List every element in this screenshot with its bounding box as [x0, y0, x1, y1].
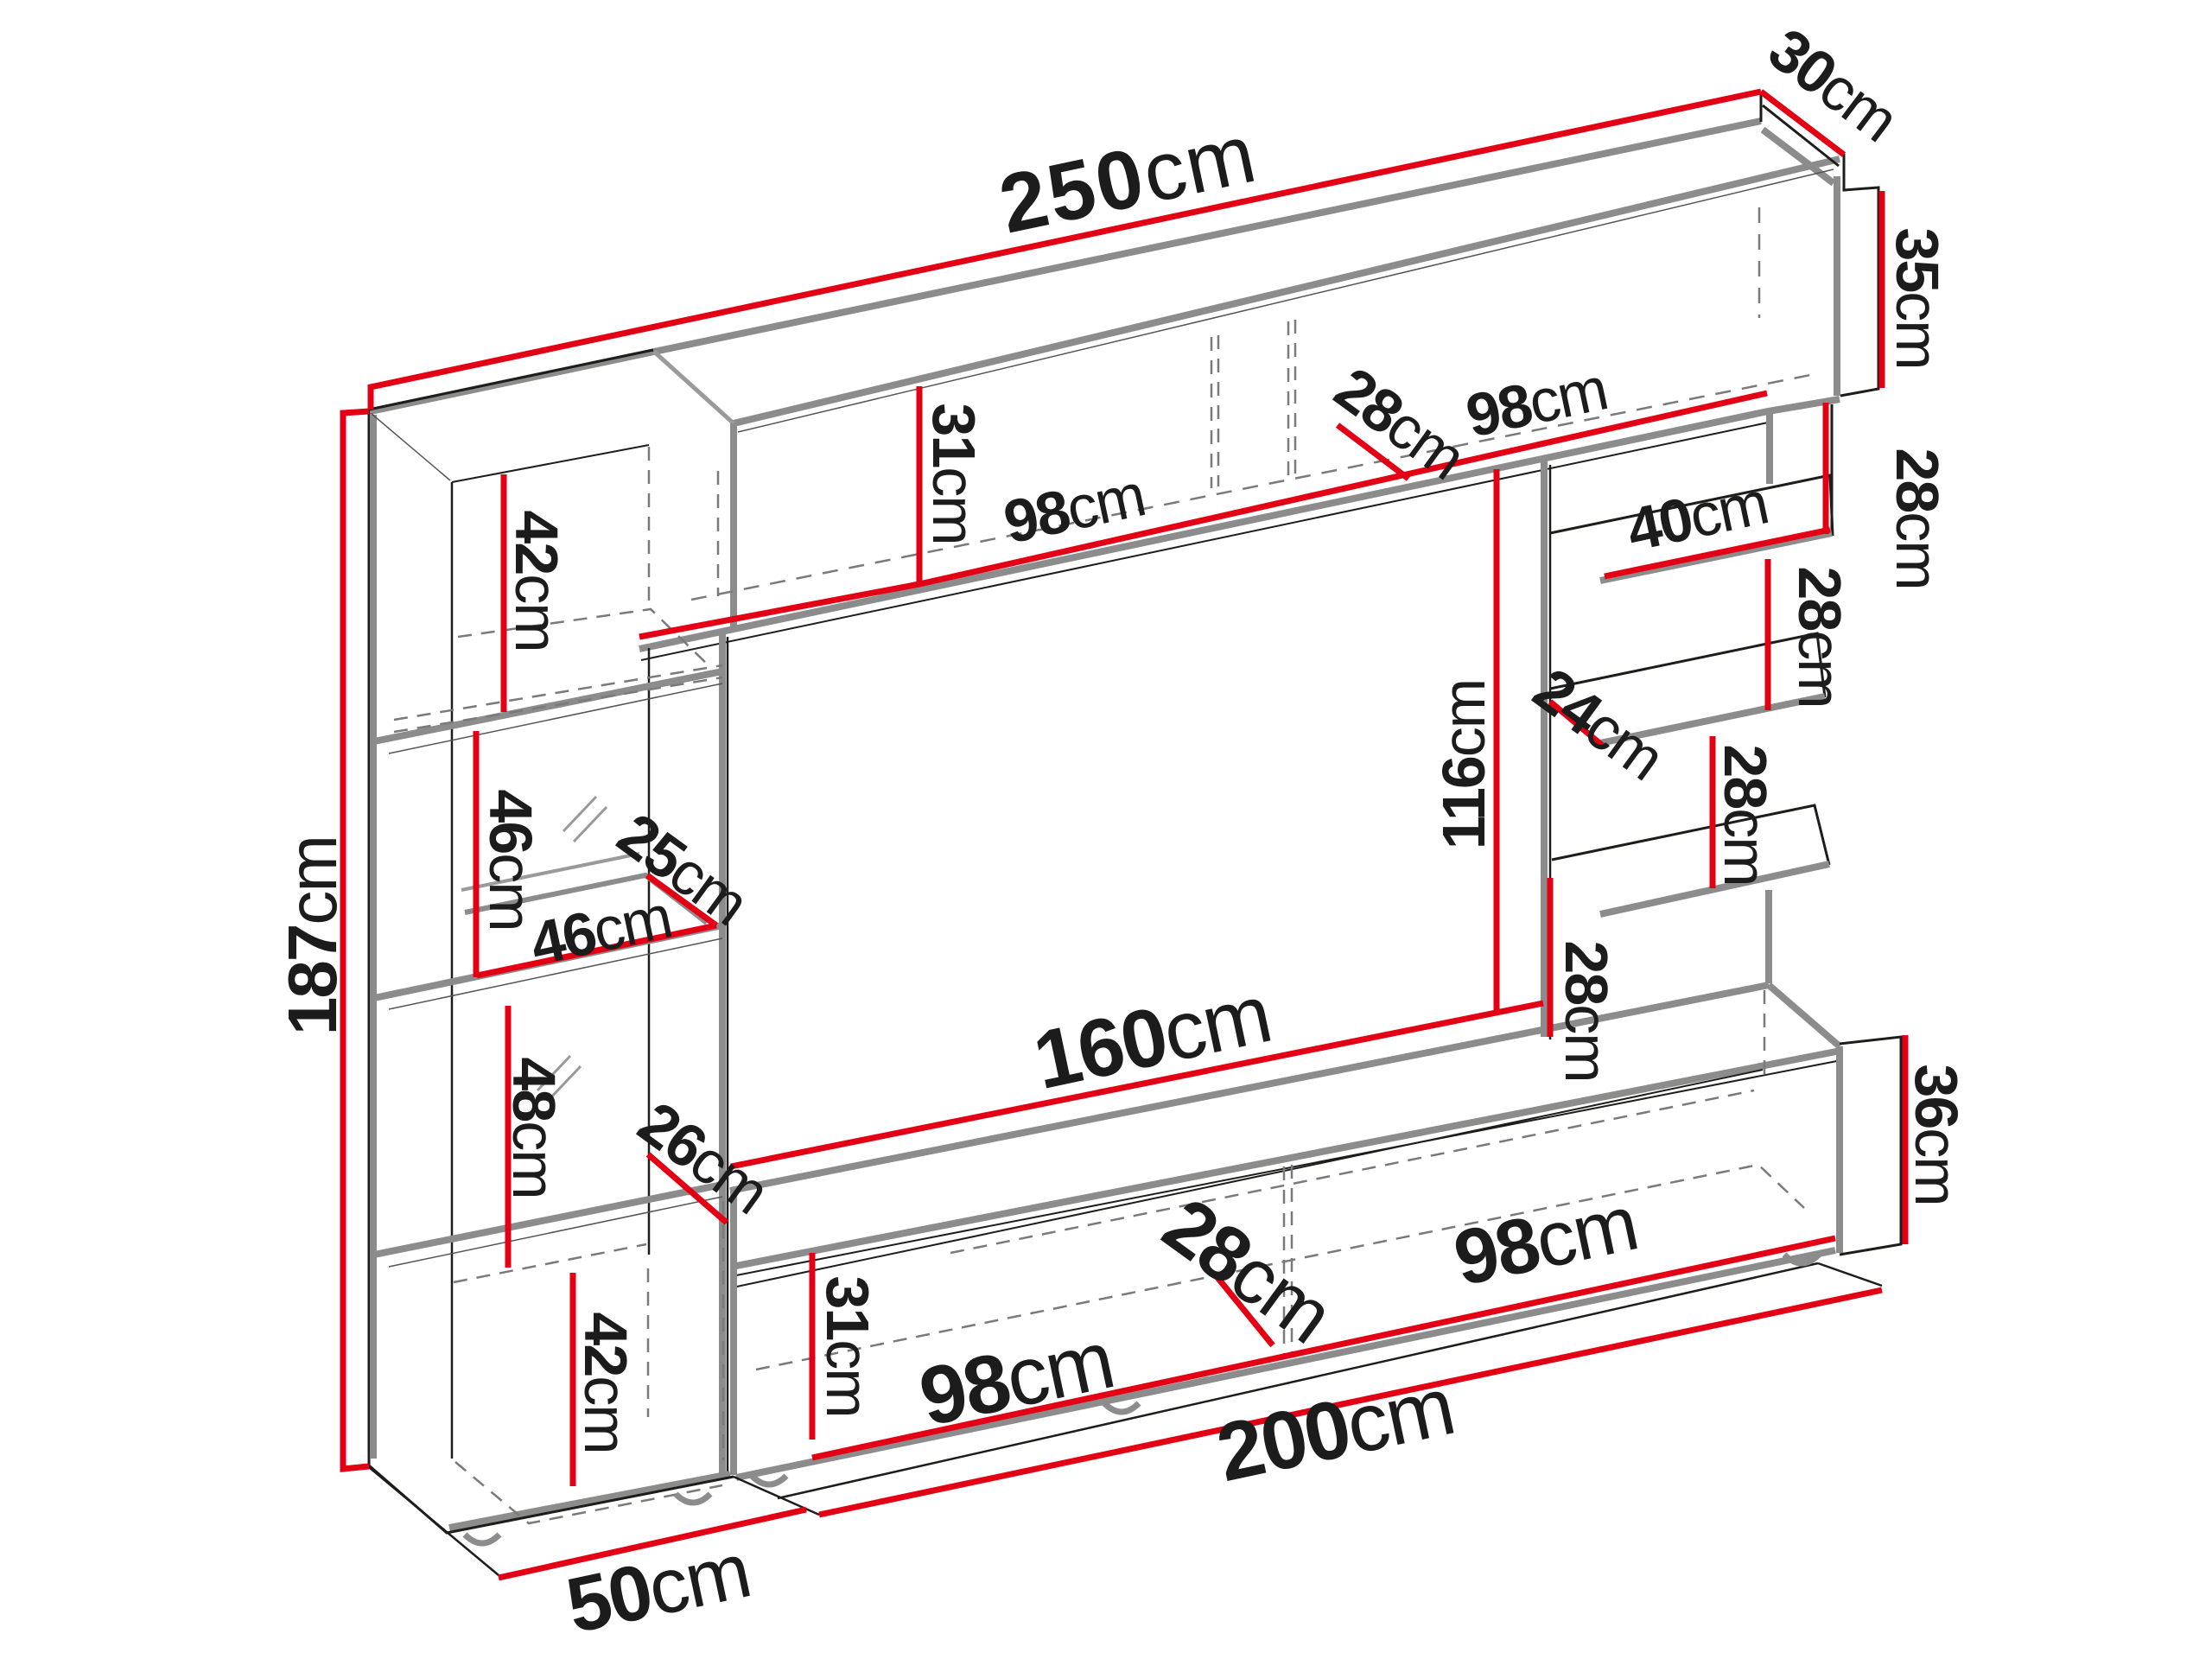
svg-text:116cm: 116cm — [1430, 680, 1497, 849]
svg-text:42cm: 42cm — [572, 1312, 639, 1452]
svg-text:28cm: 28cm — [1147, 1182, 1346, 1360]
svg-text:160cm: 160cm — [1027, 968, 1278, 1107]
svg-text:250cm: 250cm — [992, 107, 1264, 251]
svg-text:35cm: 35cm — [1884, 227, 1951, 368]
svg-text:31cm: 31cm — [920, 403, 988, 543]
svg-text:28cm: 28cm — [1553, 940, 1620, 1081]
svg-text:50cm: 50cm — [560, 1528, 757, 1650]
svg-text:98cm: 98cm — [998, 461, 1150, 556]
svg-text:36cm: 36cm — [1903, 1064, 1970, 1205]
svg-text:31cm: 31cm — [814, 1275, 881, 1416]
svg-text:28cm: 28cm — [1712, 744, 1779, 885]
svg-text:98cm: 98cm — [912, 1314, 1121, 1444]
svg-text:30cm: 30cm — [1757, 16, 1910, 155]
svg-text:48cm: 48cm — [500, 1057, 568, 1198]
svg-text:42cm: 42cm — [503, 510, 570, 651]
svg-text:200cm: 200cm — [1210, 1360, 1461, 1499]
svg-text:28cm: 28cm — [1884, 448, 1951, 588]
svg-text:28cm: 28cm — [1786, 566, 1853, 707]
svg-text:187cm: 187cm — [274, 836, 351, 1035]
